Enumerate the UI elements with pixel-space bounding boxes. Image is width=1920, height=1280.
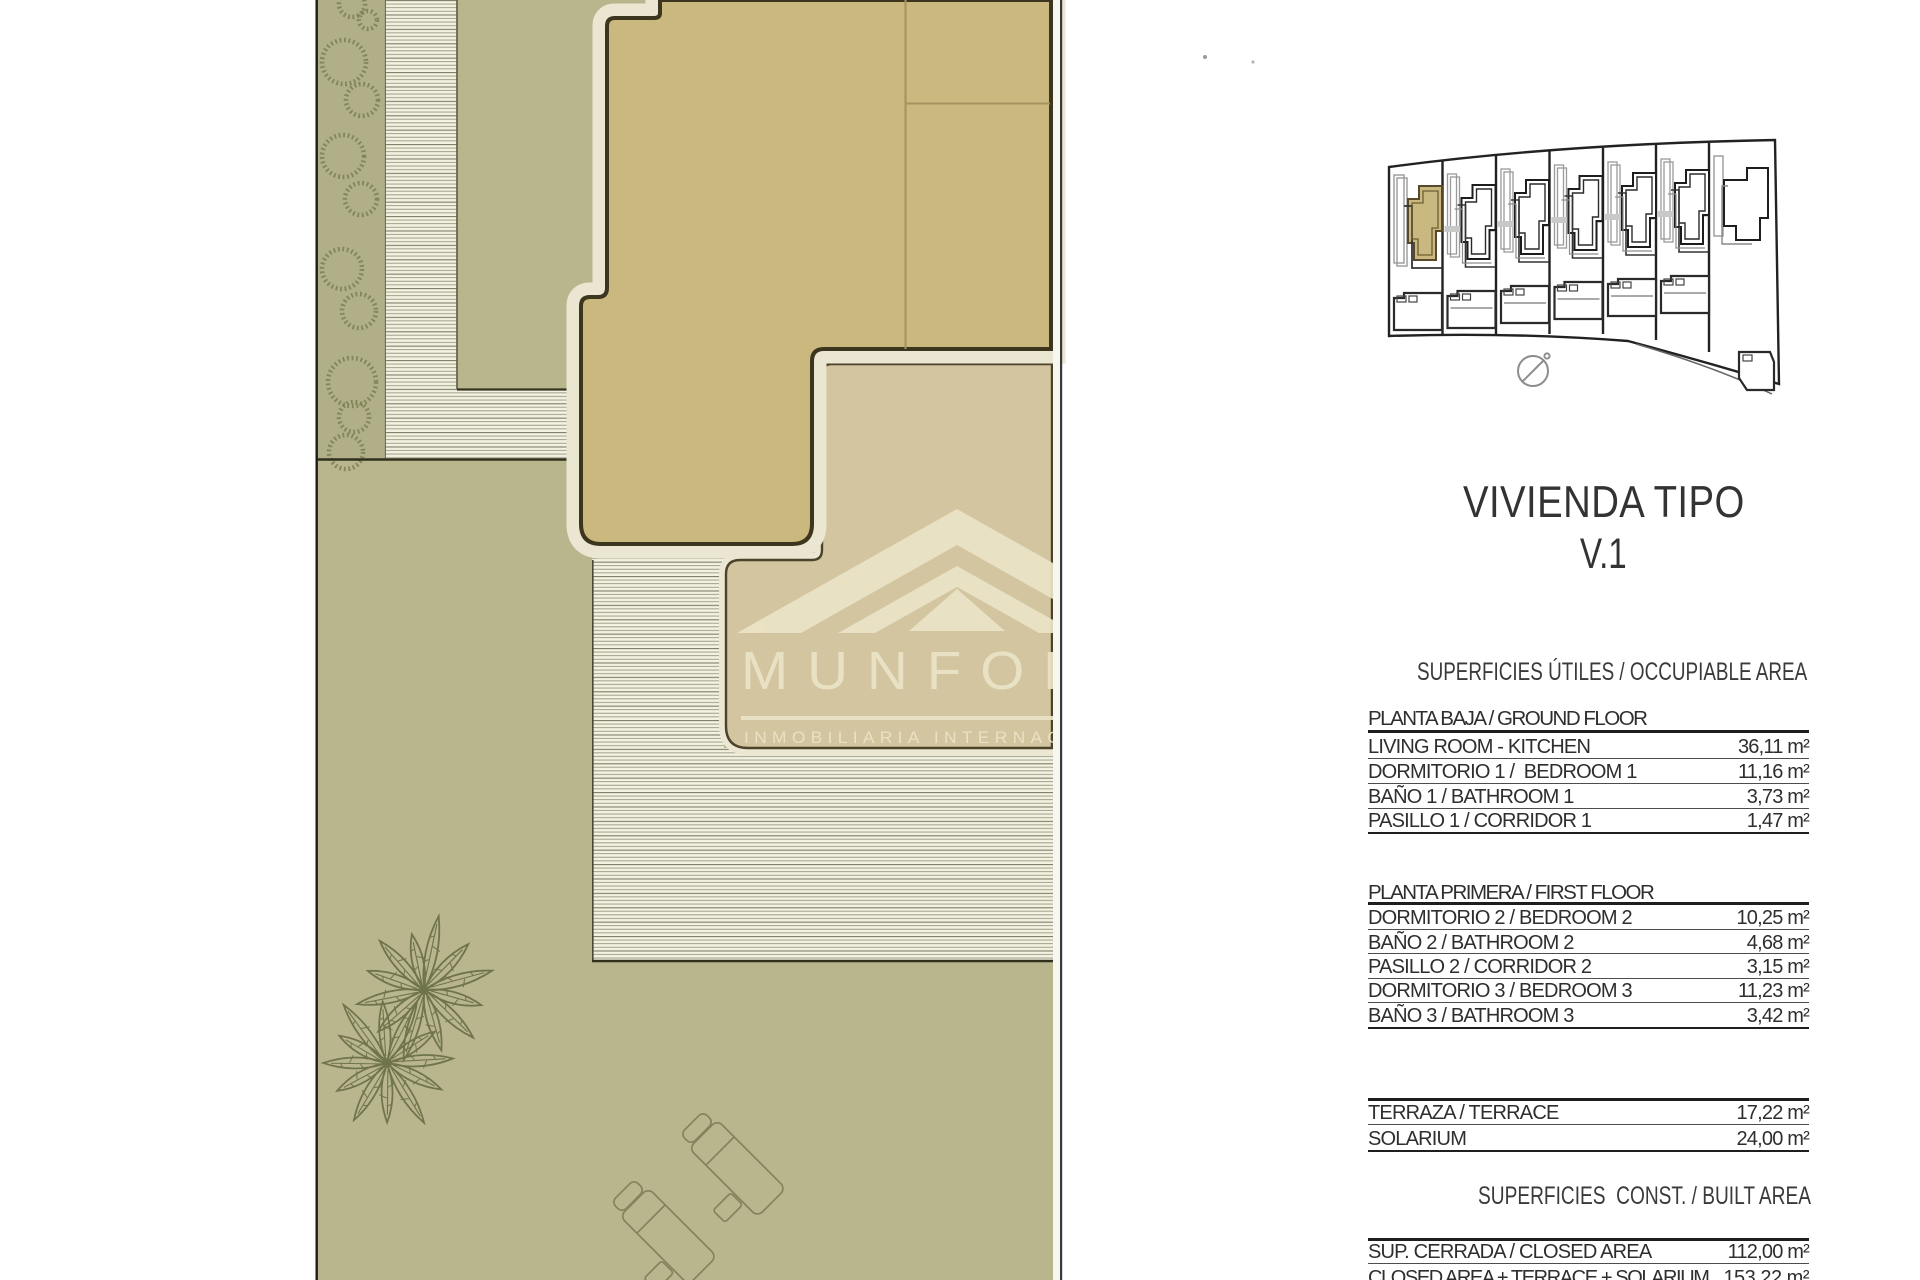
svg-text:MUNFOR: MUNFOR <box>741 641 1103 701</box>
svg-text:INMOBILIARIA INTERNACIONAL: INMOBILIARIA INTERNACIONAL <box>744 729 1144 747</box>
